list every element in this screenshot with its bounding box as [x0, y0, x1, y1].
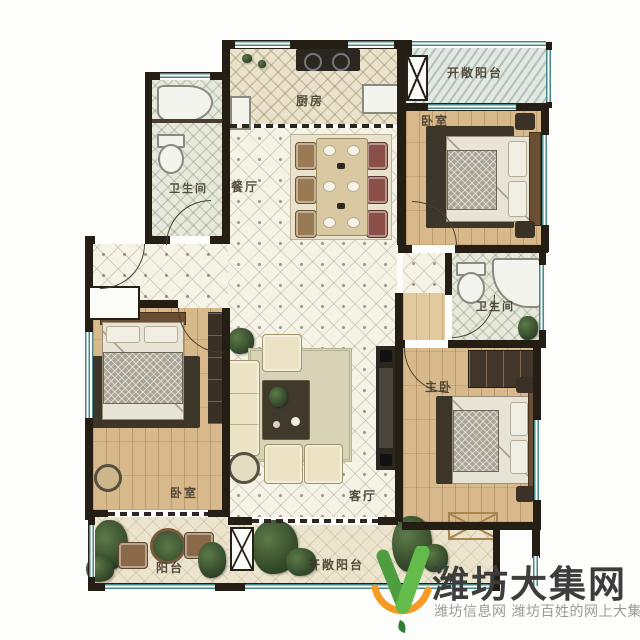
- armchair-icon: [264, 444, 303, 484]
- room-label-balcony-top-right: 开敞阳台: [447, 64, 503, 81]
- wall: [402, 522, 540, 530]
- wall: [448, 340, 540, 348]
- window: [160, 73, 210, 80]
- dining-chair-icon: [366, 176, 388, 204]
- pillow-icon: [510, 440, 528, 474]
- room-label-bedroom-bottom-left: 卧室: [170, 484, 198, 501]
- watermark-title: 潍坊大集网: [432, 554, 627, 608]
- pillow-icon: [508, 141, 527, 177]
- pillow-icon: [144, 326, 178, 343]
- pillow-icon: [508, 181, 527, 217]
- tv-cabinet-icon: [376, 346, 396, 470]
- window: [534, 420, 541, 500]
- wall: [85, 236, 95, 244]
- window-x-mark: [406, 55, 428, 101]
- wall: [397, 40, 406, 245]
- window: [539, 265, 546, 330]
- bed-blanket: [103, 352, 183, 404]
- room-label-bedroom-top-right: 卧室: [421, 112, 449, 129]
- window: [85, 332, 93, 418]
- wall: [395, 293, 403, 522]
- stool-icon: [94, 464, 122, 492]
- balcony-plant-icon: [198, 542, 226, 578]
- coffee-table-icon: [262, 380, 310, 440]
- wall: [88, 510, 108, 517]
- headboard: [529, 132, 541, 226]
- room-label-kitchen: 厨房: [296, 92, 324, 109]
- dining-chair-icon: [295, 176, 317, 204]
- burner-icon: [332, 53, 350, 71]
- wall: [445, 253, 452, 295]
- wall: [222, 40, 230, 244]
- armchair-icon: [304, 444, 343, 484]
- window-x-mark: [230, 527, 254, 571]
- wall: [228, 517, 252, 525]
- kitchen-counter-icon: [362, 84, 399, 114]
- room-label-master: 主卧: [425, 378, 453, 395]
- wall: [145, 72, 152, 244]
- window: [89, 525, 95, 577]
- bath-divider: [152, 119, 222, 123]
- window: [542, 135, 549, 225]
- dining-chair-icon: [295, 210, 317, 238]
- armchair-icon: [262, 334, 302, 372]
- window: [428, 104, 516, 110]
- side-table-icon: [228, 452, 260, 484]
- nightstand-icon: [515, 221, 535, 238]
- opening-kitchen-dining: [230, 124, 396, 128]
- room-label-dining: 餐厅: [231, 178, 259, 195]
- burner-icon: [304, 53, 322, 71]
- sofa-icon: [226, 360, 260, 456]
- entry-cabinet-icon: [88, 286, 140, 320]
- room-label-living: 客厅: [349, 487, 377, 504]
- nightstand-icon: [516, 486, 534, 502]
- wall: [222, 308, 230, 517]
- window: [412, 41, 546, 48]
- dining-chair-icon: [295, 142, 317, 170]
- room-label-bathroom-right: 卫生间: [476, 298, 515, 314]
- watermark-subtitle: 潍坊信息网 潍坊百姓的网上大集: [434, 601, 640, 621]
- v-check-swoosh-icon: [370, 546, 432, 638]
- wall: [398, 245, 412, 253]
- pillow-icon: [106, 326, 140, 343]
- room-label-bathroom-top-left: 卫生间: [169, 180, 208, 196]
- window: [348, 41, 394, 48]
- bathroom-plant-icon: [518, 316, 538, 340]
- toilet-icon: [158, 144, 184, 174]
- dining-chair-icon: [366, 210, 388, 238]
- window: [105, 584, 215, 591]
- wall: [208, 510, 228, 517]
- balcony-chair-icon: [118, 542, 148, 569]
- wall: [455, 245, 548, 253]
- sliding-door-bedroom-balcony: [108, 512, 208, 516]
- room-label-balcony-bottom-left: 阳台: [156, 559, 184, 576]
- floor-plan-image: 开敞阳台 卧室 卫生间 厨房 餐厅 卫生间 主卧 卧室 客厅 阳台 开敞阳台 潍…: [0, 0, 640, 640]
- sliding-door-living-balcony: [252, 519, 378, 523]
- bed-blanket: [447, 150, 497, 210]
- watermark: 潍坊大集网 潍坊信息网 潍坊百姓的网上大集: [368, 544, 640, 640]
- dining-table-icon: [316, 138, 368, 236]
- stove-icon: [296, 49, 360, 71]
- kitchen-plant-icon: [242, 54, 252, 63]
- nightstand-icon: [515, 113, 535, 130]
- window: [546, 50, 552, 102]
- pillow-icon: [510, 402, 528, 436]
- hall-right-extension: [403, 253, 445, 293]
- dining-chair-icon: [366, 142, 388, 170]
- window: [235, 41, 290, 48]
- room-label-balcony-bottom: 开敞阳台: [308, 556, 364, 573]
- kitchen-plant-icon: [258, 60, 266, 68]
- corridor: [403, 293, 445, 340]
- nightstand-icon: [516, 377, 534, 393]
- bed-blanket: [453, 410, 499, 472]
- wall: [378, 517, 398, 525]
